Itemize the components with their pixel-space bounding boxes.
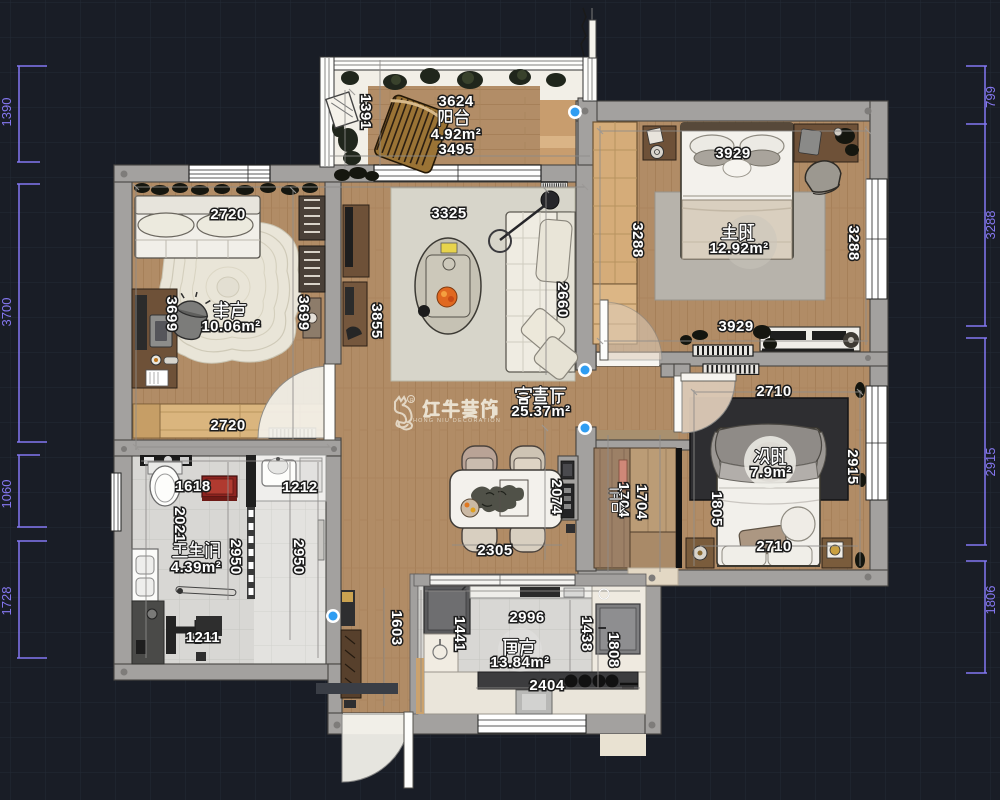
svg-text:3700: 3700 <box>0 298 14 327</box>
svg-text:3495: 3495 <box>438 141 473 158</box>
svg-text:1212: 1212 <box>282 479 317 496</box>
svg-text:7.9m²: 7.9m² <box>750 464 792 481</box>
svg-text:1390: 1390 <box>0 98 14 127</box>
svg-text:1728: 1728 <box>0 587 14 616</box>
svg-text:2660: 2660 <box>554 282 571 317</box>
svg-text:2710: 2710 <box>756 383 791 400</box>
svg-text:4.92m²: 4.92m² <box>431 126 482 143</box>
svg-text:4.39m²: 4.39m² <box>171 559 222 576</box>
svg-text:1438: 1438 <box>578 616 595 651</box>
svg-text:2710: 2710 <box>756 538 791 555</box>
svg-text:2915: 2915 <box>844 449 861 484</box>
svg-text:2305: 2305 <box>477 542 512 559</box>
svg-text:12.92m²: 12.92m² <box>709 240 768 257</box>
svg-text:HONG NIU DECORATION: HONG NIU DECORATION <box>413 418 501 424</box>
svg-text:3699: 3699 <box>163 296 180 331</box>
svg-text:3929: 3929 <box>715 145 750 162</box>
svg-text:1391: 1391 <box>357 94 374 129</box>
svg-text:1603: 1603 <box>388 610 405 645</box>
svg-text:1618: 1618 <box>175 478 210 495</box>
svg-text:3288: 3288 <box>629 222 646 257</box>
svg-text:3325: 3325 <box>431 205 466 222</box>
svg-text:25.37m²: 25.37m² <box>511 403 570 420</box>
svg-text:2950: 2950 <box>227 539 244 574</box>
svg-text:2720: 2720 <box>210 206 245 223</box>
svg-text:2720: 2720 <box>210 417 245 434</box>
svg-text:1704: 1704 <box>633 484 650 520</box>
svg-text:2074: 2074 <box>548 479 565 515</box>
svg-text:2404: 2404 <box>529 677 565 694</box>
svg-text:2915: 2915 <box>983 448 998 477</box>
svg-text:2950: 2950 <box>290 539 307 574</box>
svg-text:1808: 1808 <box>605 632 622 667</box>
svg-text:1060: 1060 <box>0 480 14 509</box>
svg-text:1211: 1211 <box>186 629 221 646</box>
svg-text:799: 799 <box>983 86 998 108</box>
svg-text:2021: 2021 <box>171 507 188 542</box>
svg-text:3699: 3699 <box>295 295 312 330</box>
svg-text:3288: 3288 <box>983 211 998 240</box>
svg-text:13.84m²: 13.84m² <box>490 654 549 671</box>
svg-text:1806: 1806 <box>983 586 998 615</box>
svg-text:2996: 2996 <box>509 609 544 626</box>
svg-text:1805: 1805 <box>708 491 725 526</box>
svg-text:R: R <box>410 398 414 404</box>
svg-text:3929: 3929 <box>718 318 753 335</box>
svg-text:3288: 3288 <box>845 225 862 260</box>
svg-text:10.06m²: 10.06m² <box>201 318 260 335</box>
svg-text:1441: 1441 <box>451 616 468 651</box>
svg-text:3624: 3624 <box>438 93 474 110</box>
svg-text:3855: 3855 <box>368 303 385 338</box>
